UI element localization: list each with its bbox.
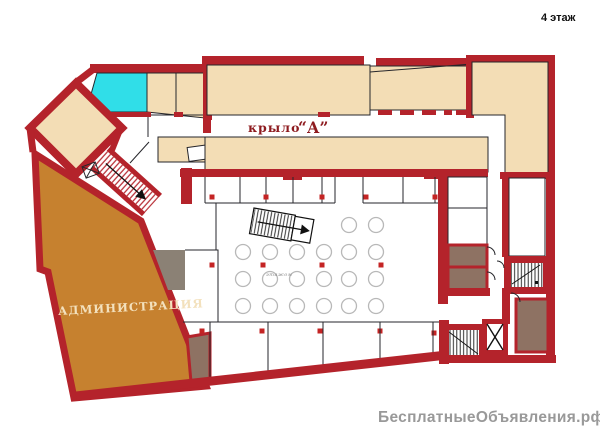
brown-room-lower-right [516, 299, 548, 352]
column-marker [261, 263, 266, 268]
table-circle [342, 218, 357, 233]
column-marker [432, 331, 437, 336]
column-marker [320, 263, 325, 268]
elevator [482, 319, 508, 355]
office-row-upper [205, 177, 470, 250]
middle-tan-band [205, 137, 488, 172]
table-circle [317, 299, 332, 314]
table-circle [236, 299, 251, 314]
right-large-room [509, 178, 545, 256]
door-arc-icon [497, 261, 504, 268]
table-circle [236, 272, 251, 287]
wing-a-room [207, 65, 370, 115]
table-circle [369, 218, 384, 233]
column-marker [260, 329, 265, 334]
column-marker [364, 195, 369, 200]
column-marker [433, 195, 438, 200]
table-circle [342, 272, 357, 287]
column-marker [264, 195, 269, 200]
gray-room-lower [187, 333, 210, 382]
table-circle [369, 299, 384, 314]
table-circle [369, 272, 384, 287]
floor-label: 4 этаж [541, 12, 576, 24]
column-marker [379, 263, 384, 268]
floor-plan-canvas: 4 этаж крыло “А” АДМИНИСТРАЦИЯ этажом Бе… [0, 0, 600, 434]
table-circle [290, 245, 305, 260]
column-marker [210, 263, 215, 268]
column-marker [318, 329, 323, 334]
table-circle [317, 272, 332, 287]
table-circle [342, 299, 357, 314]
structural-columns [200, 195, 438, 336]
table-circle [317, 245, 332, 260]
table-circle [236, 245, 251, 260]
table-circle [263, 299, 278, 314]
stairs-center [249, 208, 314, 244]
watermark-label: БесплатныеОбъявления.рф [378, 409, 600, 426]
wing-letter-label: “А” [298, 118, 328, 137]
table-circle [290, 299, 305, 314]
column-marker [210, 195, 215, 200]
table-circle [369, 245, 384, 260]
wing-label: крыло [248, 120, 300, 135]
wc-room-1 [448, 245, 487, 267]
center-note-label: этажом [266, 272, 292, 278]
right-wing [438, 170, 556, 364]
table-circle [342, 245, 357, 260]
dashed-wall [378, 110, 472, 115]
table-circle [263, 245, 278, 260]
small-room-outline [185, 250, 218, 322]
floor-plan-page: 4 этаж крыло “А” АДМИНИСТРАЦИЯ этажом Бе… [0, 0, 600, 434]
column-marker [320, 195, 325, 200]
column-marker [200, 329, 205, 334]
